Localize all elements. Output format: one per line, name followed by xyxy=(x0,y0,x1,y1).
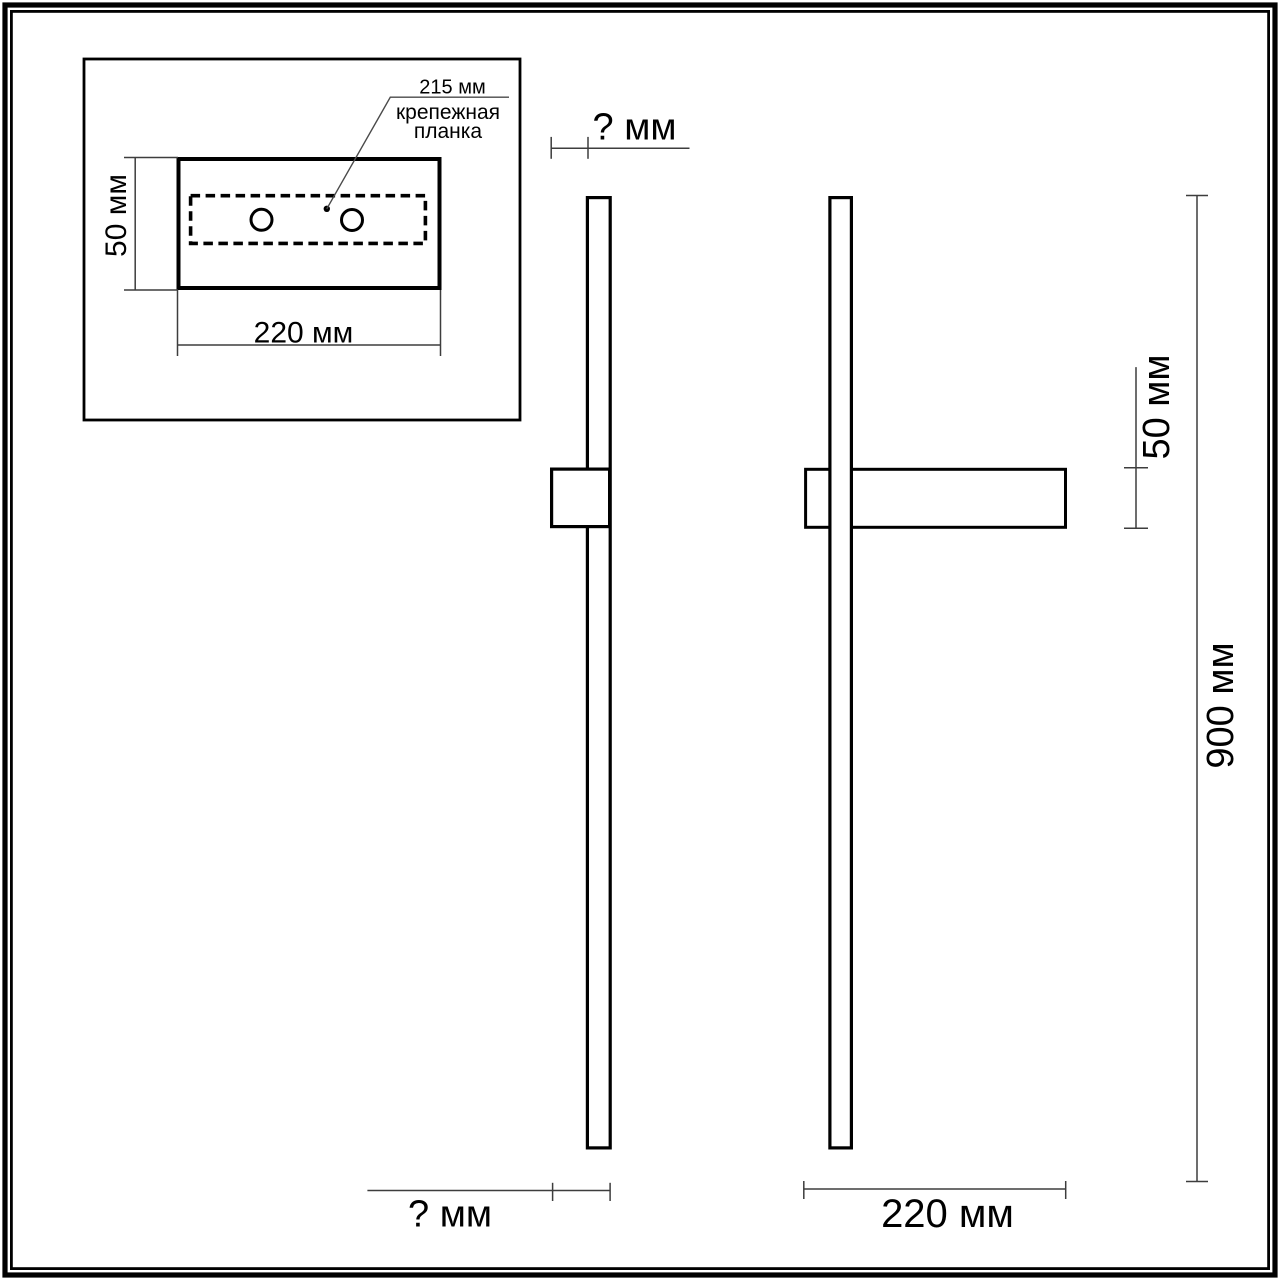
svg-text:215 мм: 215 мм xyxy=(419,77,485,99)
svg-text:220 мм: 220 мм xyxy=(254,317,354,350)
svg-text:50 мм: 50 мм xyxy=(100,174,133,257)
svg-text:220 мм: 220 мм xyxy=(881,1192,1014,1236)
svg-text:? мм: ? мм xyxy=(593,107,677,149)
svg-text:планка: планка xyxy=(414,120,483,143)
svg-text:? мм: ? мм xyxy=(408,1194,492,1236)
svg-text:50 мм: 50 мм xyxy=(1136,354,1178,459)
svg-text:900 мм: 900 мм xyxy=(1200,642,1242,768)
